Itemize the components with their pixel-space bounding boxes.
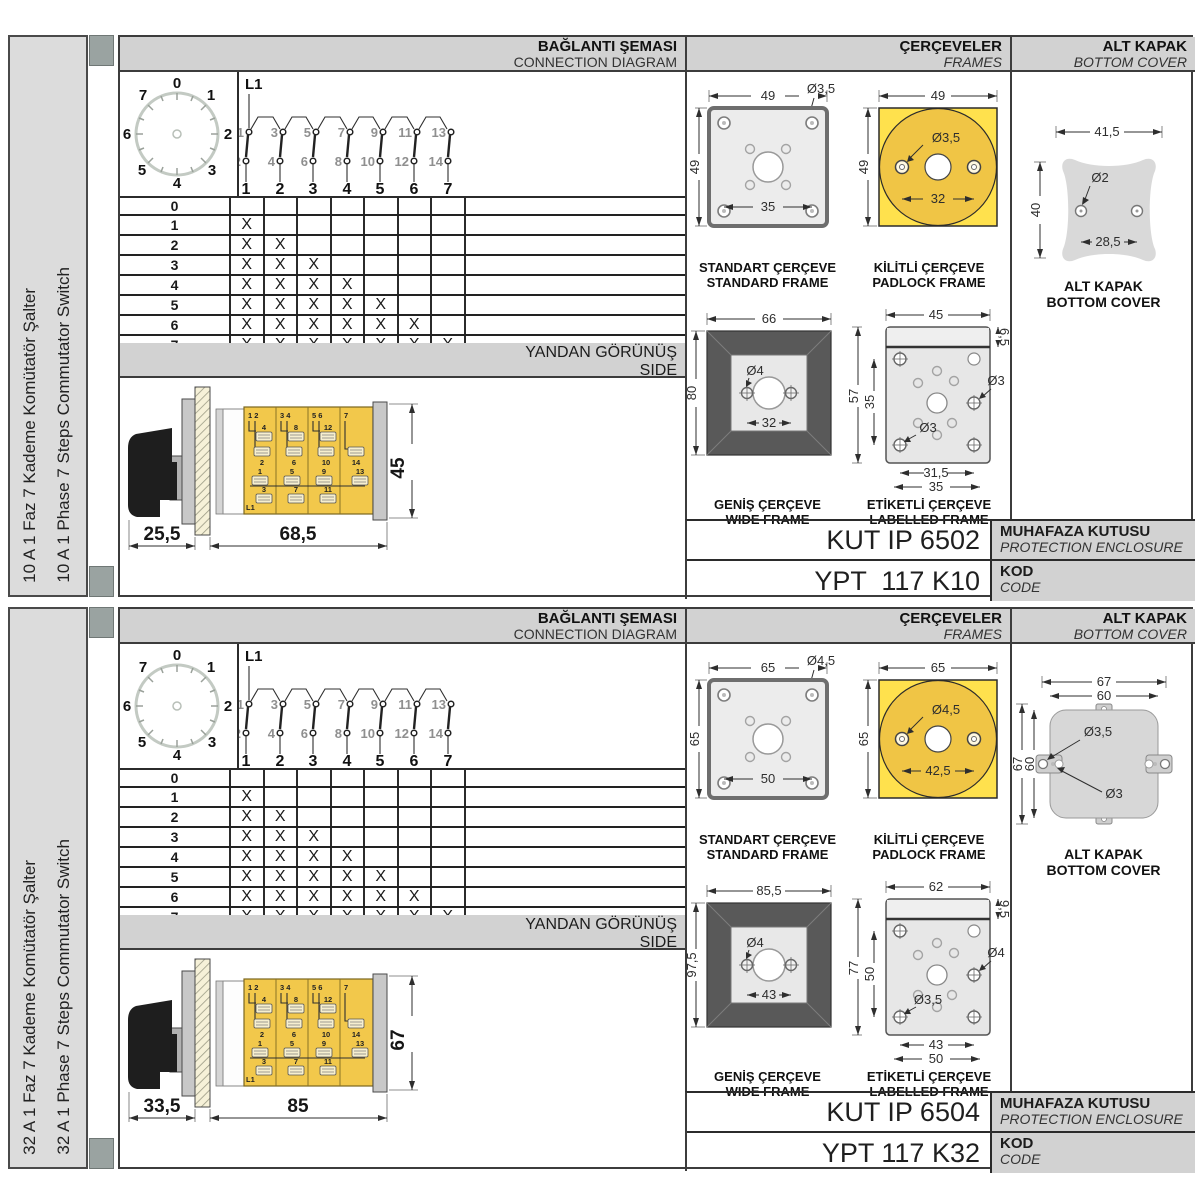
output-numbers: 1 2 3 4 5 6 7 [242, 753, 453, 768]
mounting-plate [195, 959, 210, 1107]
svg-text:9: 9 [322, 467, 326, 476]
svg-text:1: 1 [242, 753, 251, 768]
svg-text:85: 85 [287, 1096, 309, 1117]
svg-text:3: 3 [262, 1057, 266, 1066]
svg-text:1: 1 [207, 659, 215, 676]
svg-text:49: 49 [687, 160, 702, 174]
sidebar-title-en: 10 A 1 Phase 7 Steps Commutator Switch [54, 267, 74, 583]
dial-0: 0 [173, 75, 181, 92]
svg-text:7: 7 [139, 659, 147, 676]
svg-text:2: 2 [276, 753, 285, 768]
step-table: 0 1 X [120, 198, 685, 343]
svg-text:8: 8 [294, 423, 298, 432]
dial-5: 5 [138, 162, 146, 179]
svg-text:10: 10 [322, 1030, 330, 1039]
svg-text:42,5: 42,5 [925, 763, 950, 778]
svg-text:43: 43 [762, 987, 776, 1002]
hole-dia-label: Ø4,5 [807, 654, 835, 668]
frames-section: 49 Ø3,5 35 49 STANDART ÇERÇE [685, 72, 1010, 519]
svg-text:5: 5 [376, 753, 385, 768]
table-row: 0 [120, 770, 685, 787]
step-label: 6 [120, 887, 230, 907]
svg-text:65: 65 [930, 660, 944, 675]
enclosure-code-row: KUT IP 6504 MUHAFAZA KUTUSU PROTECTION E… [687, 1093, 1195, 1133]
hole-dia-label: Ø3 [919, 420, 936, 435]
svg-text:10: 10 [361, 726, 375, 741]
standard-frame-figure: 49 Ø3,5 35 49 STANDART ÇERÇE [687, 72, 848, 295]
padlock-frame-figure: 65 Ø4,5 42,5 65 KİLİTLİ ÇERÇEVE PADLOCK … [848, 644, 1010, 867]
figure-caption: STANDART ÇERÇEVE STANDARD FRAME [687, 260, 848, 290]
svg-text:9: 9 [371, 697, 378, 712]
connection-diagram: 0 1 2 3 4 5 6 7 L1 [120, 72, 685, 198]
table-row: 2 X X [120, 235, 685, 255]
svg-text:5 6: 5 6 [312, 983, 322, 992]
svg-text:12: 12 [395, 726, 409, 741]
bottom-cover-figure: 41,5 Ø2 40 28,5 [1012, 118, 1197, 278]
end-plate [373, 402, 387, 520]
step-label: 6 [120, 315, 230, 335]
svg-text:3: 3 [271, 697, 278, 712]
svg-text:49: 49 [930, 88, 944, 103]
hole-dia-label: Ø3,5 [914, 992, 942, 1007]
table-row: 4 X X X X [120, 847, 685, 867]
standard-frame-figure: 65 Ø4,5 50 65 STANDART ÇERÇE [687, 644, 848, 867]
step-label: 1 [120, 787, 230, 807]
svg-text:3: 3 [309, 753, 318, 768]
svg-text:1 2: 1 2 [248, 411, 258, 420]
svg-text:9: 9 [371, 125, 378, 140]
svg-text:65: 65 [761, 660, 775, 675]
svg-text:6: 6 [292, 1030, 296, 1039]
panel-32a: BAĞLANTI ŞEMASI CONNECTION DIAGRAM ÇERÇE… [118, 607, 1193, 1169]
svg-text:7: 7 [344, 411, 348, 420]
connection-diagram: 0 1 2 3 4 5 6 7 L1 [120, 644, 685, 770]
svg-text:5: 5 [376, 181, 385, 196]
svg-text:65: 65 [856, 732, 871, 746]
body-phase-label: L1 [246, 1075, 255, 1084]
enclosure-label: MUHAFAZA KUTUSU PROTECTION ENCLOSURE [990, 1093, 1195, 1131]
step-label: 0 [120, 770, 230, 787]
wide-frame-figure: 66 Ø4 32 80 GENİŞ ÇERÇEVE WID [687, 295, 848, 519]
binder-mark [89, 607, 114, 638]
svg-text:62: 62 [929, 879, 943, 894]
svg-text:43: 43 [929, 1037, 943, 1052]
svg-text:32: 32 [762, 415, 776, 430]
svg-text:7: 7 [344, 983, 348, 992]
svg-text:5: 5 [304, 697, 311, 712]
bottom-cover-section: 41,5 Ø2 40 28,5 ALT KAPAK BOTTOM COVER [1010, 72, 1195, 519]
side-view-drawing: 1 2 4 2 1 3 3 4 8 6 5 7 [120, 378, 685, 597]
svg-text:2: 2 [224, 698, 232, 715]
svg-text:3: 3 [262, 485, 266, 494]
svg-text:9: 9 [322, 1039, 326, 1048]
svg-text:80: 80 [687, 386, 699, 400]
binder-mark [89, 1138, 114, 1169]
front-plate [182, 971, 195, 1096]
step-label: 1 [120, 215, 230, 235]
svg-text:50: 50 [929, 1051, 943, 1066]
svg-text:14: 14 [429, 154, 444, 169]
hole-dia-label: Ø3,5 [807, 82, 835, 96]
svg-text:1: 1 [239, 697, 244, 712]
switch-dial: 0 1 2 3 4 5 6 7 [120, 644, 239, 768]
svg-text:5 6: 5 6 [312, 411, 322, 420]
padlock-frame-figure: 49 Ø3,5 32 49 KİLİTLİ ÇERÇEVE PADLOCK FR… [848, 72, 1010, 295]
connection-diagram-header: BAĞLANTI ŞEMASI CONNECTION DIAGRAM [120, 37, 685, 72]
step-label: 3 [120, 255, 230, 275]
svg-text:10: 10 [322, 458, 330, 467]
svg-text:8: 8 [294, 995, 298, 1004]
svg-text:66: 66 [762, 311, 776, 326]
dial-1: 1 [207, 87, 215, 104]
svg-text:60: 60 [1097, 688, 1111, 703]
svg-text:67: 67 [1097, 674, 1111, 689]
svg-text:2: 2 [260, 1030, 264, 1039]
switch-dial: 0 1 2 3 4 5 6 7 [120, 72, 239, 196]
bridges [251, 689, 447, 701]
table-row: 3 X X X [120, 827, 685, 847]
step-label: 5 [120, 295, 230, 315]
figure-caption: KİLİTLİ ÇERÇEVE PADLOCK FRAME [848, 832, 1010, 862]
svg-text:4: 4 [173, 747, 182, 764]
svg-text:60: 60 [1022, 757, 1037, 771]
bottom-cover-figure: 67 60 Ø3,5 Ø3 67 60 [1012, 670, 1197, 846]
table-row: 2 X X [120, 807, 685, 827]
sidebar-title-tr: 10 A 1 Faz 7 Kademe Komütatör Şalter [20, 288, 40, 583]
svg-text:7: 7 [338, 697, 345, 712]
contact-schematic: L1 1 3 [239, 72, 685, 196]
svg-text:68,5: 68,5 [280, 524, 317, 545]
step-label: 2 [120, 807, 230, 827]
sidebar-panel-32a: 32 A 1 Faz 7 Kademe Komütatör Şalter 32 … [8, 607, 88, 1169]
hole-dia-label: Ø4 [746, 935, 763, 950]
dial-ticks [136, 93, 218, 175]
bottom-cover-header: ALT KAPAK BOTTOM COVER [1010, 609, 1195, 644]
dial-7: 7 [139, 87, 147, 104]
sidebar-title-tr: 32 A 1 Faz 7 Kademe Komütatör Şalter [20, 860, 40, 1155]
body-phase-label: L1 [246, 503, 255, 512]
svg-text:14: 14 [352, 1030, 361, 1039]
table-row: 3 X X X [120, 255, 685, 275]
svg-text:41,5: 41,5 [1094, 124, 1119, 139]
svg-text:32: 32 [930, 191, 944, 206]
svg-text:11: 11 [398, 697, 412, 712]
sidebar-panel-10a: 10 A 1 Faz 7 Kademe Komütatör Şalter 10 … [8, 35, 88, 597]
labelled-frame-figure: 45 6,5 Ø3 Ø3 57 [848, 295, 1010, 519]
svg-text:7: 7 [444, 753, 453, 768]
svg-text:50: 50 [761, 771, 775, 786]
svg-text:14: 14 [352, 458, 361, 467]
product-code-row: YPT 117 K32 KOD CODE [687, 1133, 1195, 1173]
figure-caption: ALT KAPAK BOTTOM COVER [1012, 846, 1195, 878]
svg-text:31,5: 31,5 [923, 465, 948, 480]
table-row: 1 X [120, 787, 685, 807]
step-label: 3 [120, 827, 230, 847]
svg-text:6: 6 [301, 154, 308, 169]
svg-text:12: 12 [395, 154, 409, 169]
dim-height: 45 [388, 404, 418, 518]
connection-diagram-header: BAĞLANTI ŞEMASI CONNECTION DIAGRAM [120, 609, 685, 644]
step-table: 0 1 X [120, 770, 685, 915]
bottom-cover-header: ALT KAPAK BOTTOM COVER [1010, 37, 1195, 72]
hole-dia-label: Ø3,5 [931, 130, 959, 145]
product-code: YPT 117 K10 [687, 561, 990, 601]
dial-4: 4 [173, 175, 182, 192]
svg-text:8: 8 [335, 154, 342, 169]
svg-text:85,5: 85,5 [756, 883, 781, 898]
svg-text:25,5: 25,5 [144, 524, 181, 545]
svg-text:9,5: 9,5 [997, 900, 1010, 918]
hole-dia-label: Ø4 [987, 945, 1004, 960]
code-label: KOD CODE [990, 561, 1195, 601]
table-row: 0 [120, 198, 685, 215]
svg-text:13: 13 [432, 125, 446, 140]
panel-10a: BAĞLANTI ŞEMASI CONNECTION DIAGRAM ÇERÇE… [118, 35, 1193, 597]
svg-text:4: 4 [343, 181, 352, 196]
product-code-row: YPT 117 K10 KOD CODE [687, 561, 1195, 601]
table-row: 6 X X X X X X [120, 887, 685, 907]
svg-text:10: 10 [361, 154, 375, 169]
dial-3: 3 [208, 162, 216, 179]
svg-text:7: 7 [338, 125, 345, 140]
table-row: 5 X X X X X [120, 867, 685, 887]
binder-mark [89, 566, 114, 597]
codes-section: KUT IP 6504 MUHAFAZA KUTUSU PROTECTION E… [685, 1091, 1195, 1171]
product-code: YPT 117 K32 [687, 1133, 990, 1173]
output-numbers: 1 2 3 4 5 6 7 [242, 181, 453, 196]
svg-text:6: 6 [410, 753, 419, 768]
step-label: 0 [120, 198, 230, 215]
bottom-cover-section: 67 60 Ø3,5 Ø3 67 60 ALT KAPAK BOTTOM [1010, 644, 1195, 1091]
sidebar-title-en: 32 A 1 Phase 7 Steps Commutator Switch [54, 839, 74, 1155]
svg-text:7: 7 [294, 1057, 298, 1066]
svg-text:7: 7 [444, 181, 453, 196]
enclosure-label: MUHAFAZA KUTUSU PROTECTION ENCLOSURE [990, 521, 1195, 559]
dim-height: 67 [388, 976, 418, 1090]
svg-text:1: 1 [258, 467, 262, 476]
svg-text:0: 0 [173, 647, 181, 664]
svg-text:2: 2 [276, 181, 285, 196]
step-label: 4 [120, 275, 230, 295]
enclosure-code: KUT IP 6504 [687, 1093, 990, 1131]
svg-text:67: 67 [388, 1029, 409, 1050]
hole-dia-label: Ø3,5 [1084, 724, 1112, 739]
handle [128, 1000, 177, 1089]
svg-text:2: 2 [239, 726, 241, 741]
step-label: 5 [120, 867, 230, 887]
svg-text:45: 45 [388, 457, 409, 479]
svg-text:8: 8 [335, 726, 342, 741]
figure-caption: KİLİTLİ ÇERÇEVE PADLOCK FRAME [848, 260, 1010, 290]
side-view-drawing: 1 2 4 2 1 3 3 4 8 6 5 7 5 6 [120, 950, 685, 1169]
svg-text:45: 45 [929, 307, 943, 322]
side-view-header: YANDAN GÖRÜNÜŞ SIDE [120, 343, 685, 378]
figure-caption: STANDART ÇERÇEVE STANDARD FRAME [687, 832, 848, 862]
svg-text:50: 50 [862, 967, 877, 981]
svg-text:6: 6 [410, 181, 419, 196]
hole-dia-label: Ø3 [987, 373, 1004, 388]
svg-text:11: 11 [324, 485, 332, 494]
svg-text:6,5: 6,5 [997, 328, 1010, 346]
svg-text:7: 7 [294, 485, 298, 494]
dim-body: 68,5 [210, 522, 387, 550]
figure-caption: ALT KAPAK BOTTOM COVER [1012, 278, 1195, 310]
bridges [251, 117, 447, 129]
front-plate [182, 399, 195, 524]
svg-text:14: 14 [429, 726, 444, 741]
svg-text:5: 5 [138, 734, 146, 751]
dim-body: 85 [210, 1094, 387, 1122]
frames-header: ÇERÇEVELER FRAMES [685, 37, 1010, 72]
binder-mark [89, 35, 114, 66]
svg-text:5: 5 [290, 1039, 294, 1048]
svg-text:49: 49 [761, 88, 775, 103]
table-row: 1 X [120, 215, 685, 235]
table-row: 4 X X X X [120, 275, 685, 295]
svg-text:6: 6 [123, 698, 131, 715]
svg-text:6: 6 [292, 458, 296, 467]
svg-text:12: 12 [324, 423, 332, 432]
svg-text:3 4: 3 4 [280, 983, 291, 992]
svg-text:2: 2 [239, 154, 241, 169]
labelled-frame-figure: 62 9,5 Ø4 Ø3,5 [848, 867, 1010, 1091]
svg-text:5: 5 [290, 467, 294, 476]
svg-text:3: 3 [271, 125, 278, 140]
svg-text:97,5: 97,5 [687, 952, 699, 977]
step-label: 2 [120, 235, 230, 255]
svg-text:1: 1 [258, 1039, 262, 1048]
svg-text:4: 4 [268, 726, 276, 741]
enclosure-code-row: KUT IP 6502 MUHAFAZA KUTUSU PROTECTION E… [687, 521, 1195, 561]
svg-text:28,5: 28,5 [1095, 234, 1120, 249]
svg-text:33,5: 33,5 [144, 1096, 181, 1117]
svg-text:13: 13 [356, 1039, 364, 1048]
svg-text:4: 4 [268, 154, 276, 169]
table-row: 5 X X X X X [120, 295, 685, 315]
svg-text:13: 13 [356, 467, 364, 476]
svg-text:12: 12 [324, 995, 332, 1004]
svg-text:11: 11 [398, 125, 412, 140]
svg-text:3: 3 [309, 181, 318, 196]
hole-dia-label: Ø4,5 [931, 702, 959, 717]
step-label: 4 [120, 847, 230, 867]
svg-text:3 4: 3 4 [280, 411, 291, 420]
svg-text:77: 77 [848, 961, 861, 975]
hole-dia-label: Ø3 [1105, 786, 1122, 801]
svg-text:2: 2 [260, 458, 264, 467]
svg-text:5: 5 [304, 125, 311, 140]
phase-label: L1 [245, 648, 263, 665]
hole-dia-label: Ø4 [746, 363, 763, 378]
table-row: 6 X X X X X X [120, 315, 685, 335]
svg-text:1: 1 [239, 125, 244, 140]
svg-text:57: 57 [848, 389, 861, 403]
mounting-plate [195, 387, 210, 535]
svg-text:1 2: 1 2 [248, 983, 258, 992]
phase-label: L1 [245, 76, 263, 93]
svg-text:13: 13 [432, 697, 446, 712]
contact-schematic: L1 1 3 [239, 644, 685, 768]
dial-2: 2 [224, 126, 232, 143]
side-view-header: YANDAN GÖRÜNÜŞ SIDE [120, 915, 685, 950]
frames-section: 65 Ø4,5 50 65 STANDART ÇERÇE [685, 644, 1010, 1091]
code-label: KOD CODE [990, 1133, 1195, 1173]
svg-text:65: 65 [687, 732, 702, 746]
svg-text:49: 49 [856, 160, 871, 174]
catalog-page: { "shared": { "headers": { "connection_t… [0, 0, 1200, 1200]
handle [128, 428, 177, 517]
dial-6: 6 [123, 126, 131, 143]
svg-text:1: 1 [242, 181, 251, 196]
svg-text:35: 35 [862, 395, 877, 409]
svg-text:40: 40 [1028, 203, 1043, 217]
dial-ticks [136, 665, 218, 747]
svg-text:6: 6 [301, 726, 308, 741]
svg-text:11: 11 [324, 1057, 332, 1066]
hole-dia-label: Ø2 [1091, 170, 1108, 185]
codes-section: KUT IP 6502 MUHAFAZA KUTUSU PROTECTION E… [685, 519, 1195, 599]
frames-header: ÇERÇEVELER FRAMES [685, 609, 1010, 644]
svg-text:4: 4 [343, 753, 352, 768]
enclosure-code: KUT IP 6502 [687, 521, 990, 559]
svg-text:3: 3 [208, 734, 216, 751]
svg-text:35: 35 [929, 479, 943, 494]
svg-text:35: 35 [761, 199, 775, 214]
wide-frame-figure: 85,5 Ø4 43 97,5 GENİŞ ÇERÇEVE [687, 867, 848, 1091]
end-plate [373, 974, 387, 1092]
